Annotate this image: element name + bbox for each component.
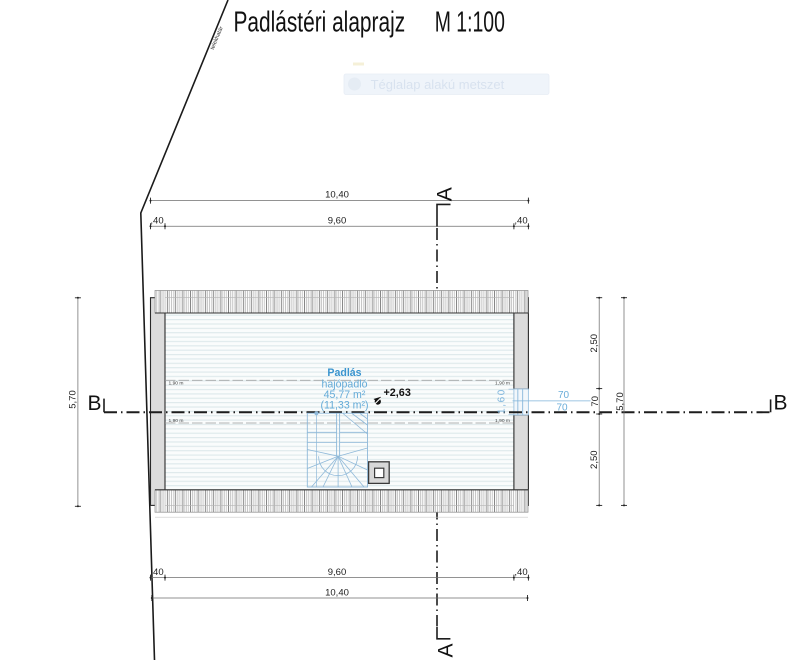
svg-text:1,90 m: 1,90 m: [169, 418, 184, 424]
svg-text:5,70: 5,70: [615, 392, 626, 411]
svg-text:Téglalap alakú metszet: Téglalap alakú metszet: [371, 77, 505, 92]
svg-text:2,50: 2,50: [589, 334, 600, 353]
svg-text:,40: ,40: [514, 567, 527, 578]
svg-text:10,40: 10,40: [325, 190, 349, 201]
svg-text:M 1:100: M 1:100: [435, 7, 505, 39]
svg-text:(11,33 m²): (11,33 m²): [320, 399, 368, 411]
svg-text:9,60: 9,60: [328, 215, 347, 226]
svg-text:5,70: 5,70: [68, 390, 79, 409]
svg-text:B: B: [88, 392, 102, 415]
svg-text:1,90 m: 1,90 m: [169, 381, 184, 387]
svg-text:+2,63: +2,63: [384, 387, 411, 399]
svg-text:A: A: [434, 187, 457, 201]
svg-text:2,50: 2,50: [589, 450, 600, 469]
svg-text:70: 70: [556, 403, 568, 414]
svg-text:1,60: 1,60: [496, 388, 507, 414]
svg-text:Padlás: Padlás: [327, 367, 361, 379]
svg-text:,40: ,40: [150, 215, 163, 226]
svg-text:,40: ,40: [150, 567, 163, 578]
svg-text:9,60: 9,60: [328, 567, 347, 578]
svg-text:70: 70: [558, 390, 570, 401]
svg-text:,40: ,40: [514, 215, 527, 226]
svg-text:Padlástéri alaprajz: Padlástéri alaprajz: [234, 6, 406, 38]
svg-text:70: 70: [590, 396, 601, 407]
svg-text:1,90 m: 1,90 m: [495, 381, 510, 387]
svg-text:1,90 m: 1,90 m: [495, 418, 510, 424]
svg-text:10,40: 10,40: [325, 588, 349, 599]
svg-text:A: A: [435, 643, 458, 657]
svg-text:B: B: [774, 392, 788, 415]
